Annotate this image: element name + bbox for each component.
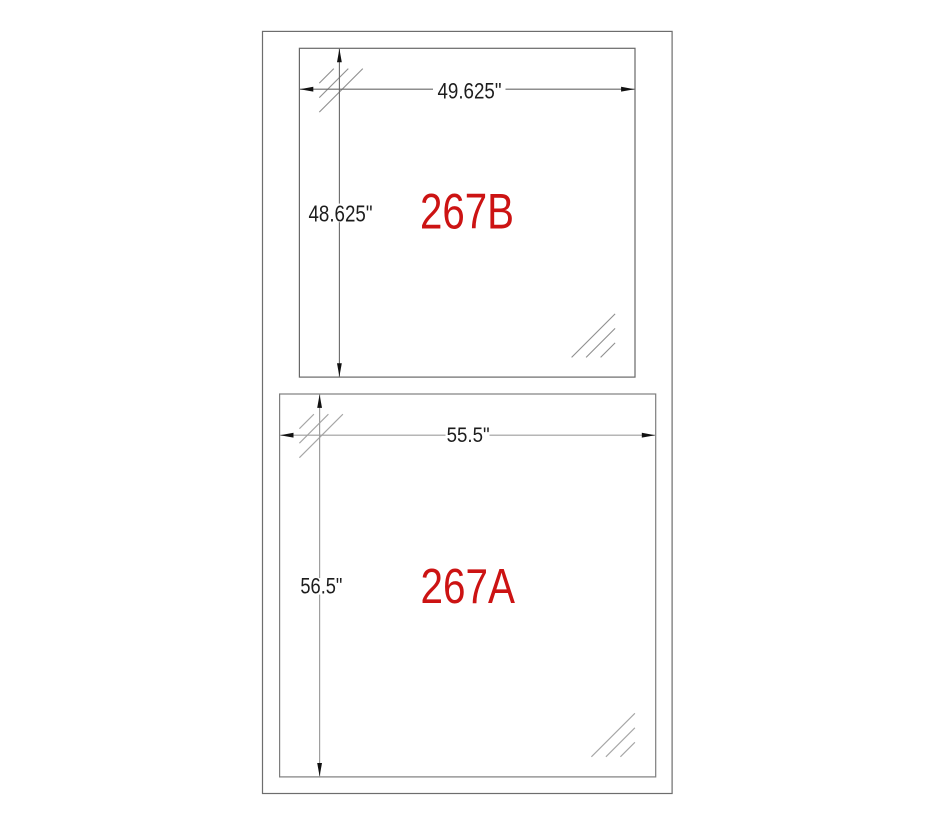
svg-text:48.625": 48.625" bbox=[309, 200, 373, 226]
svg-text:55.5": 55.5" bbox=[447, 423, 490, 447]
svg-text:267B: 267B bbox=[420, 183, 514, 239]
svg-text:267A: 267A bbox=[421, 560, 516, 614]
svg-text:56.5": 56.5" bbox=[300, 574, 342, 599]
svg-text:49.625": 49.625" bbox=[438, 78, 502, 103]
